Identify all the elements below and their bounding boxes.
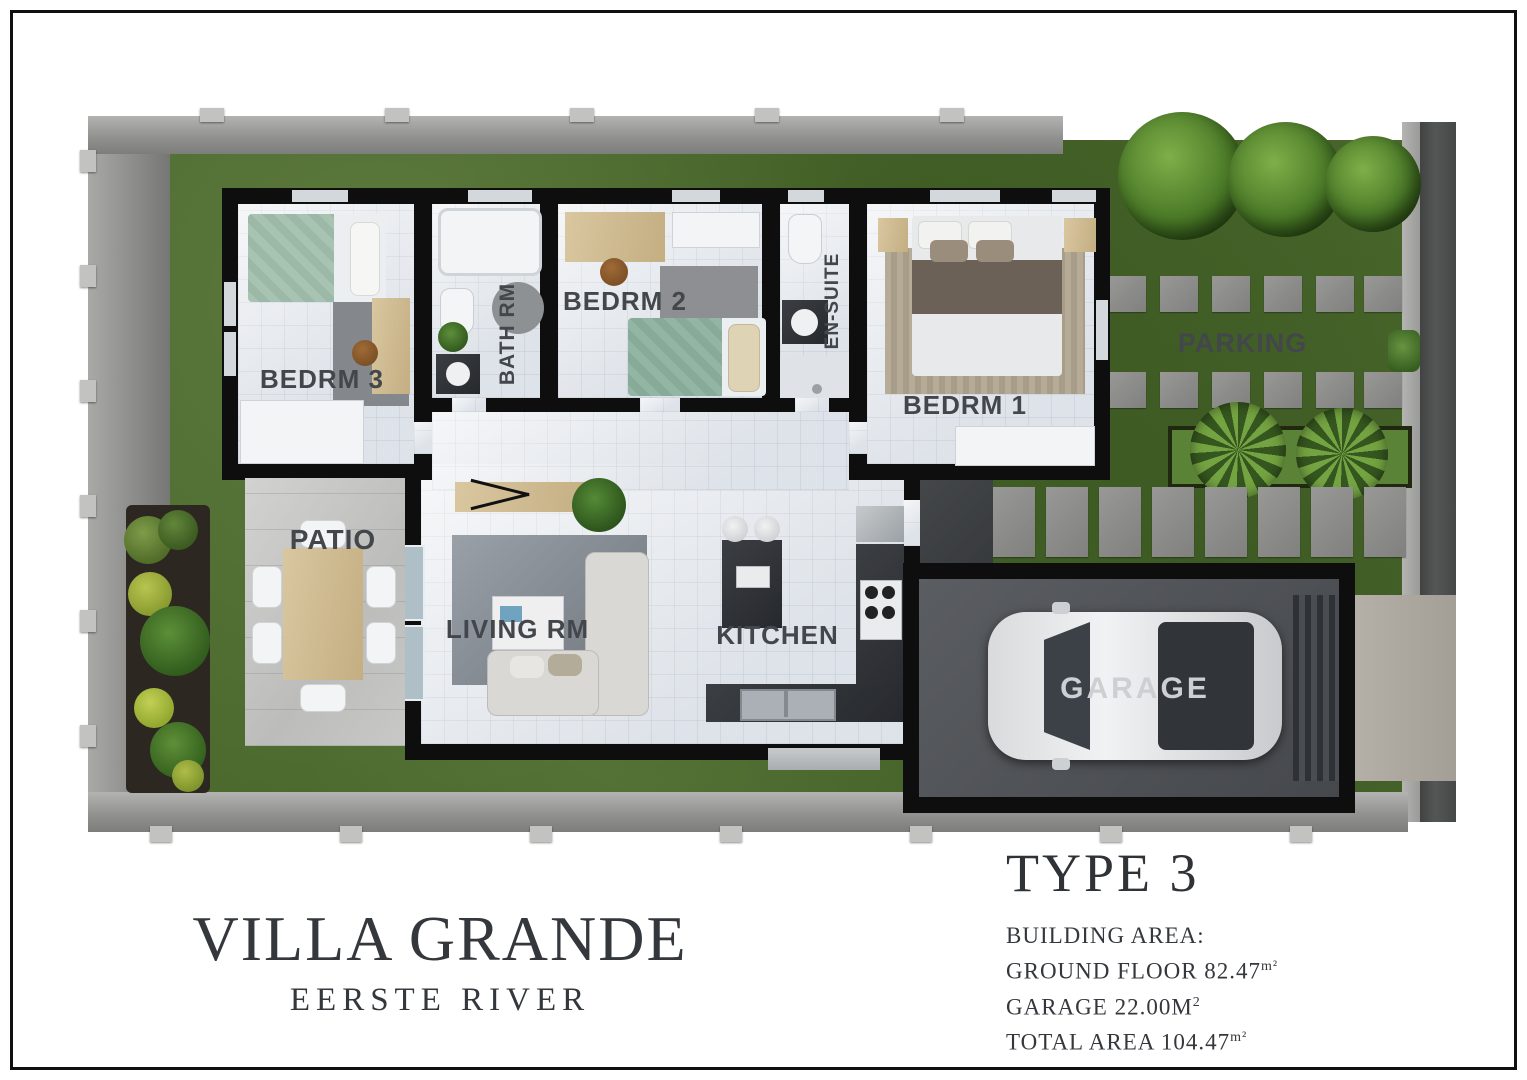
- chair: [252, 622, 282, 664]
- toilet: [788, 214, 822, 264]
- room-label-kitchen: KITCHEN: [700, 620, 855, 651]
- hedge: [1388, 330, 1420, 372]
- burner: [882, 606, 895, 619]
- bar-stool: [754, 516, 780, 542]
- shelf: [672, 212, 760, 248]
- wall-pillar: [720, 826, 742, 842]
- bed-blanket: [628, 318, 722, 396]
- room-label-living: LIVING RM: [430, 614, 605, 645]
- shower-drain: [812, 384, 822, 394]
- spec-superscript: 2: [1193, 995, 1201, 1010]
- wall-pillar: [940, 108, 964, 122]
- flax-plant: [1190, 402, 1286, 498]
- spec-text: GARAGE 22.00M: [1006, 994, 1193, 1019]
- chair: [300, 684, 346, 712]
- window: [1096, 300, 1108, 360]
- garage-door: [1293, 595, 1339, 781]
- spec-block: TYPE 3 BUILDING AREA: GROUND FLOOR 82.47…: [1006, 842, 1426, 1058]
- project-location: EERSTE RIVER: [140, 982, 740, 1019]
- room-label-bathrm: BATH RM: [496, 274, 520, 394]
- paver: [1316, 276, 1354, 312]
- window: [224, 282, 236, 326]
- wall-pillar: [80, 150, 96, 172]
- spec-line-garage: GARAGE 22.00M2: [1006, 987, 1426, 1023]
- spec-text: GROUND FLOOR 82.47: [1006, 959, 1261, 984]
- parking-label: PARKING: [1150, 328, 1335, 359]
- wall-pillar: [755, 108, 779, 122]
- wall-pillar: [530, 826, 552, 842]
- nightstand: [878, 218, 908, 252]
- paver: [993, 487, 1035, 557]
- window: [468, 190, 532, 202]
- shrub: [140, 606, 210, 676]
- pillow: [930, 240, 968, 262]
- cupboard: [240, 400, 364, 464]
- floor-plan-poster: BEDRM 3 BATH RM BEDRM 2 EN-SUITE BEDRM 1…: [0, 0, 1527, 1080]
- paver: [1108, 276, 1146, 312]
- wall-pillar: [80, 265, 96, 287]
- window: [930, 190, 1000, 202]
- wall-pillar: [80, 495, 96, 517]
- sofa-cushion: [510, 656, 544, 678]
- room-label-patio: PATIO: [248, 524, 418, 556]
- paver: [1099, 487, 1141, 557]
- plan-type: TYPE 3: [1006, 842, 1426, 904]
- paver: [1311, 487, 1353, 557]
- sliding-door: [403, 625, 425, 701]
- paver: [1316, 372, 1354, 408]
- paver: [1364, 276, 1402, 312]
- room-label-bedrm1: BEDRM 1: [880, 390, 1050, 421]
- bed-blanket: [912, 260, 1062, 314]
- paver: [1108, 372, 1146, 408]
- wall-pillar: [150, 826, 172, 842]
- double-sink: [740, 689, 836, 721]
- wall-pillar: [340, 826, 362, 842]
- wall-pillar: [910, 826, 932, 842]
- wall-pillar: [80, 610, 96, 632]
- paver: [1046, 487, 1088, 557]
- car-mirror: [1052, 758, 1070, 770]
- pillow: [976, 240, 1014, 262]
- chair: [252, 566, 282, 608]
- shrub: [172, 760, 204, 792]
- island-drawer: [736, 566, 770, 588]
- room-label-garage: GARAGE: [1040, 672, 1230, 706]
- door-opening: [414, 422, 432, 454]
- wall-pillar: [1100, 826, 1122, 842]
- car-mirror: [1052, 602, 1070, 614]
- wall-pillar: [80, 380, 96, 402]
- door-opening: [849, 422, 867, 454]
- room-label-bedrm2: BEDRM 2: [540, 286, 710, 317]
- plant: [438, 322, 468, 352]
- window: [224, 332, 236, 376]
- sofa-cushion: [548, 654, 582, 676]
- paver: [1264, 276, 1302, 312]
- sliding-door: [403, 545, 425, 621]
- door-opening: [452, 398, 486, 412]
- paver: [1212, 276, 1250, 312]
- pillow: [350, 222, 380, 296]
- paver: [1364, 487, 1406, 557]
- paver: [1264, 372, 1302, 408]
- plant: [572, 478, 626, 532]
- paver: [1258, 487, 1300, 557]
- sink-basin: [446, 362, 470, 386]
- wall-pillar: [200, 108, 224, 122]
- spec-superscript: m²: [1261, 959, 1278, 974]
- bed-blanket: [248, 214, 334, 302]
- window: [1052, 190, 1096, 202]
- dining-table: [283, 548, 363, 680]
- entry-step: [768, 748, 880, 770]
- cupboard: [955, 426, 1095, 466]
- paver: [1205, 487, 1247, 557]
- room-label-bedrm3: BEDRM 3: [237, 364, 407, 395]
- wall-pillar: [570, 108, 594, 122]
- wall-pillar: [80, 725, 96, 747]
- window: [788, 190, 824, 202]
- shrub: [158, 510, 198, 550]
- fridge: [856, 506, 904, 542]
- burner: [865, 586, 878, 599]
- paver: [1152, 487, 1194, 557]
- desk: [565, 212, 665, 262]
- project-name: VILLA GRANDE: [140, 902, 740, 976]
- wall-pillar: [385, 108, 409, 122]
- sink-divider: [784, 689, 788, 717]
- wall-pillar: [1290, 826, 1312, 842]
- spec-text: TOTAL AREA 104.47: [1006, 1030, 1230, 1055]
- bathtub: [438, 208, 542, 276]
- stool: [352, 340, 378, 366]
- tree: [1325, 136, 1421, 232]
- building-area-heading: BUILDING AREA:: [1006, 920, 1426, 951]
- sink-basin: [791, 309, 818, 336]
- tree: [1118, 112, 1246, 240]
- door-opening: [795, 398, 829, 412]
- window: [292, 190, 348, 202]
- pillow: [728, 324, 760, 392]
- paver: [1160, 276, 1198, 312]
- chair: [366, 566, 396, 608]
- burner: [882, 586, 895, 599]
- chair: [600, 258, 628, 286]
- shrub: [134, 688, 174, 728]
- spec-superscript: m²: [1230, 1030, 1247, 1045]
- room-label-ensuite: EN-SUITE: [822, 241, 844, 361]
- door-opening: [903, 500, 920, 546]
- door-opening: [640, 398, 680, 412]
- title-block: VILLA GRANDE EERSTE RIVER: [140, 902, 740, 1019]
- paver: [1364, 372, 1402, 408]
- spec-line-total: TOTAL AREA 104.47m²: [1006, 1022, 1426, 1058]
- bar-stool: [722, 516, 748, 542]
- window: [672, 190, 720, 202]
- burner: [865, 606, 878, 619]
- driveway: [1339, 595, 1456, 781]
- paver: [1160, 372, 1198, 408]
- spec-line-ground-floor: GROUND FLOOR 82.47m²: [1006, 951, 1426, 987]
- chair: [366, 622, 396, 664]
- nightstand: [1064, 218, 1096, 252]
